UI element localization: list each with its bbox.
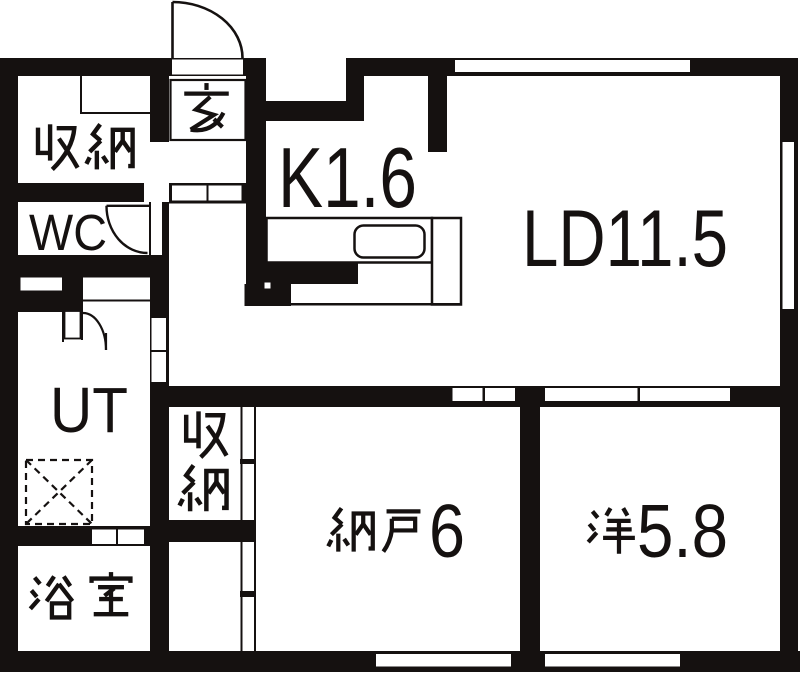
svg-text:K1.6: K1.6 xyxy=(278,131,417,226)
svg-text:LD11.5: LD11.5 xyxy=(522,194,728,284)
svg-text:WC: WC xyxy=(29,204,107,261)
svg-text:5.8: 5.8 xyxy=(637,489,728,573)
svg-text:UT: UT xyxy=(50,374,128,446)
svg-text:6: 6 xyxy=(429,489,465,573)
